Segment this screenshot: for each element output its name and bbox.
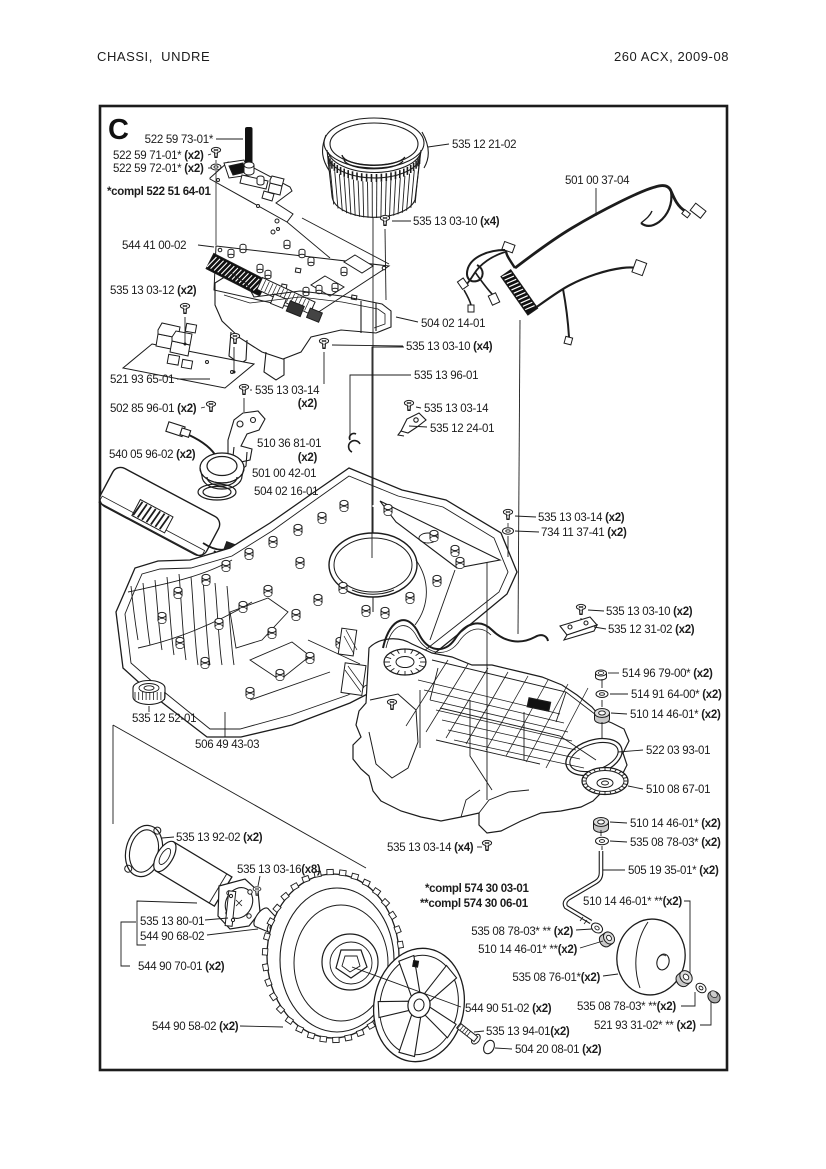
svg-text:504 02 16-01: 504 02 16-01 [254,486,318,498]
svg-text:535 13 03-14: 535 13 03-14 [424,403,489,415]
svg-text:502 85 96-01 (x2): 502 85 96-01 (x2) [110,403,197,415]
svg-text:(x2): (x2) [298,398,318,410]
svg-text:535 13 92-02 (x2): 535 13 92-02 (x2) [176,832,263,844]
svg-text:734 11 37-41 (x2): 734 11 37-41 (x2) [541,527,627,539]
svg-text:501 00 37-04: 501 00 37-04 [565,175,630,187]
svg-text:535 13 03-14 (x2): 535 13 03-14 (x2) [538,512,625,524]
svg-text:535 13 94-01(x2): 535 13 94-01(x2) [486,1026,570,1038]
svg-text:535 12 31-02 (x2): 535 12 31-02 (x2) [608,624,695,636]
svg-text:544 90 70-01 (x2): 544 90 70-01 (x2) [138,961,225,973]
svg-text:(x2): (x2) [298,452,318,464]
svg-text:535 12 52-01: 535 12 52-01 [132,713,196,725]
svg-text:535 08 78-03* **(x2): 535 08 78-03* **(x2) [577,1001,676,1013]
svg-text:*compl 522 51 64-01: *compl 522 51 64-01 [107,186,212,198]
svg-text:535 13 03-10 (x4): 535 13 03-10 (x4) [406,341,493,353]
svg-text:C: C [108,114,129,146]
svg-text:535 12 24-01: 535 12 24-01 [430,423,494,435]
svg-text:535 13 80-01: 535 13 80-01 [140,916,204,928]
svg-text:535 13 03-14 (x4): 535 13 03-14 (x4) [387,842,474,854]
svg-text:522 59 71-01* (x2): 522 59 71-01* (x2) [113,150,204,162]
svg-text:544 90 51-02 (x2): 544 90 51-02 (x2) [465,1003,552,1015]
svg-text:521 93 31-02* ** (x2): 521 93 31-02* ** (x2) [594,1020,696,1032]
svg-text:514 91 64-00* (x2): 514 91 64-00* (x2) [631,689,722,701]
svg-text:535 13 03-10 (x4): 535 13 03-10 (x4) [413,216,500,228]
svg-text:535 13 96-01: 535 13 96-01 [414,370,478,382]
svg-text:535 08 78-03* (x2): 535 08 78-03* (x2) [630,837,721,849]
svg-text:504 20 08-01 (x2): 504 20 08-01 (x2) [515,1044,602,1056]
svg-text:CHASSI, UNDRE: CHASSI, UNDRE [97,49,210,64]
svg-text:535 13 03-10 (x2): 535 13 03-10 (x2) [606,606,693,618]
svg-text:504 02 14-01: 504 02 14-01 [421,318,485,330]
svg-text:522 59 73-01*: 522 59 73-01* [145,134,214,146]
svg-text:510 08 67-01: 510 08 67-01 [646,784,710,796]
svg-text:535 13 03-16(x8): 535 13 03-16(x8) [237,864,321,876]
svg-text:535 13 03-14: 535 13 03-14 [255,385,320,397]
svg-text:535 13 03-12 (x2): 535 13 03-12 (x2) [110,285,197,297]
svg-text:544 90 68-02: 544 90 68-02 [140,931,204,943]
svg-text:514 96 79-00* (x2): 514 96 79-00* (x2) [622,668,713,680]
svg-text:544 90 58-02 (x2): 544 90 58-02 (x2) [152,1021,239,1033]
svg-text:506 49 43-03: 506 49 43-03 [195,739,259,751]
svg-text:510 36 81-01: 510 36 81-01 [257,438,321,450]
svg-text:260 ACX, 2009-08: 260 ACX, 2009-08 [614,49,729,64]
svg-text:510 14 46-01* (x2): 510 14 46-01* (x2) [630,709,721,721]
svg-text:535 12 21-02: 535 12 21-02 [452,139,516,151]
svg-text:522 59 72-01* (x2): 522 59 72-01* (x2) [113,163,204,175]
svg-text:522 03 93-01: 522 03 93-01 [646,745,710,757]
svg-text:501 00 42-01: 501 00 42-01 [252,468,316,480]
svg-text:540 05 96-02 (x2): 540 05 96-02 (x2) [109,449,196,461]
svg-text:544 41 00-02: 544 41 00-02 [122,240,186,252]
svg-text:510 14 46-01* **(x2): 510 14 46-01* **(x2) [478,944,577,956]
svg-text:535 08 76-01*(x2): 535 08 76-01*(x2) [512,972,600,984]
svg-text:510 14 46-01* **(x2): 510 14 46-01* **(x2) [583,896,682,908]
svg-text:521 93 65-01: 521 93 65-01 [110,374,174,386]
svg-text:535 08 78-03* ** (x2): 535 08 78-03* ** (x2) [471,926,573,938]
svg-text:**compl 574 30 06-01: **compl 574 30 06-01 [420,898,529,910]
svg-text:*compl 574 30 03-01: *compl 574 30 03-01 [425,883,530,895]
svg-text:505 19 35-01* (x2): 505 19 35-01* (x2) [628,865,719,877]
svg-text:510 14 46-01* (x2): 510 14 46-01* (x2) [630,818,721,830]
